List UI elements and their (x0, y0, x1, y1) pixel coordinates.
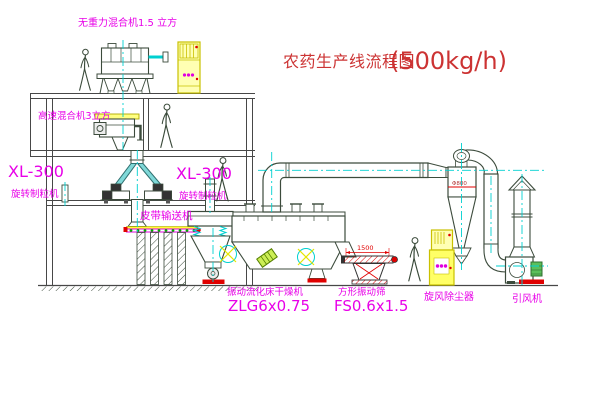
induced-draft-fan (506, 257, 545, 284)
person-figure-ground (409, 238, 420, 281)
title-capacity: (500kg/h) (390, 47, 507, 75)
label-mill-mid-name: 旋转制粒机 (179, 190, 227, 202)
conveyor-support-legs (137, 233, 186, 285)
square-vibrating-sieve (341, 248, 398, 284)
conveyor-rollers (130, 229, 196, 232)
label-cyclone: 旋风除尘器 (424, 290, 474, 303)
indicator-light (195, 46, 198, 49)
label-mill-mid-model: XL-300 (176, 164, 232, 183)
label-mill-left-model: XL-300 (8, 162, 64, 181)
person-figure-top (80, 49, 91, 90)
spring-right (220, 227, 226, 237)
control-cabinet-top (178, 42, 200, 93)
y-splitter-duct (116, 151, 161, 185)
fan-base (519, 280, 544, 285)
label-fan: 引风机 (512, 292, 542, 305)
dryer-base (308, 279, 327, 283)
sieve-deck (344, 256, 394, 263)
label-gravity-free-mixer: 无重力混合机1.5 立方 (78, 16, 177, 29)
dimension-1500: 1500 (357, 244, 374, 252)
control-cabinet-right (430, 230, 455, 285)
belt-conveyor (124, 227, 201, 233)
label-high-speed-mixer: 高速混合机3立方 (38, 110, 111, 122)
person-figure-floor2 (161, 104, 172, 147)
label-sieve-model: FS0.6x1.5 (334, 297, 408, 315)
diagram-canvas: 无重力混合机1.5 立方 农药生产线流程图 (500kg/h) 高速混合机3立方… (0, 0, 600, 403)
label-dryer-model: ZLG6x0.75 (228, 297, 310, 315)
feeder-base (203, 280, 225, 285)
fluid-bed-dryer (220, 204, 357, 283)
label-mill-left-name: 旋转制粒机 (11, 188, 59, 200)
sieve-base (352, 280, 387, 284)
gravity-free-mixer (97, 44, 168, 94)
process-flow-drawing: 无重力混合机1.5 立方 农药生产线流程图 (500kg/h) 高速混合机3立方… (0, 0, 600, 403)
dimension-cyclone-diameter: Φ800 (452, 181, 467, 187)
label-belt-conveyor: 皮带输送机 (140, 209, 193, 222)
